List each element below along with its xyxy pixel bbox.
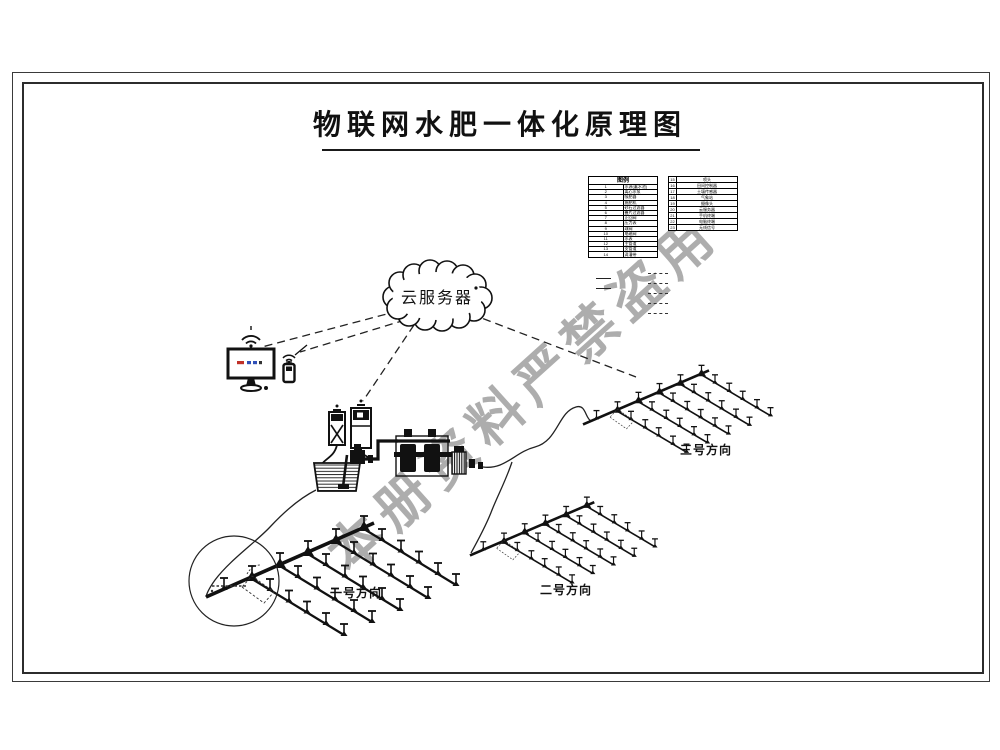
cloud-server-icon: 云服务器 <box>383 260 492 331</box>
fertilizer-machine-icon <box>351 400 371 449</box>
head-unit-equipment <box>314 400 483 492</box>
detail-callout-circle <box>189 536 279 626</box>
phone-icon <box>284 360 295 382</box>
link-cloud-to-controller <box>363 325 414 401</box>
wifi-icon <box>242 326 260 344</box>
filter-station <box>394 429 452 476</box>
disc-filter-icon <box>452 446 466 474</box>
irrigation-grid-3 <box>583 365 774 453</box>
dosing-pump-icon <box>329 405 345 446</box>
link-cloud-to-field <box>471 314 636 377</box>
pc-terminal <box>228 326 274 391</box>
irrigation-grid-1 <box>206 516 460 636</box>
pipe-to-field-1 <box>206 490 316 597</box>
valve-icon <box>478 462 483 469</box>
pipe-to-field-3 <box>483 407 591 468</box>
schematic-canvas: 云服务器 <box>0 0 1000 750</box>
irrigation-grid-2 <box>470 497 658 583</box>
valve-icon <box>469 459 475 468</box>
field-supply-pipes <box>206 407 591 597</box>
link-cloud-to-phone <box>300 320 405 352</box>
wifi-icon <box>283 345 307 361</box>
cloud-server-label: 云服务器 <box>401 289 473 307</box>
monitor-icon <box>228 349 274 391</box>
